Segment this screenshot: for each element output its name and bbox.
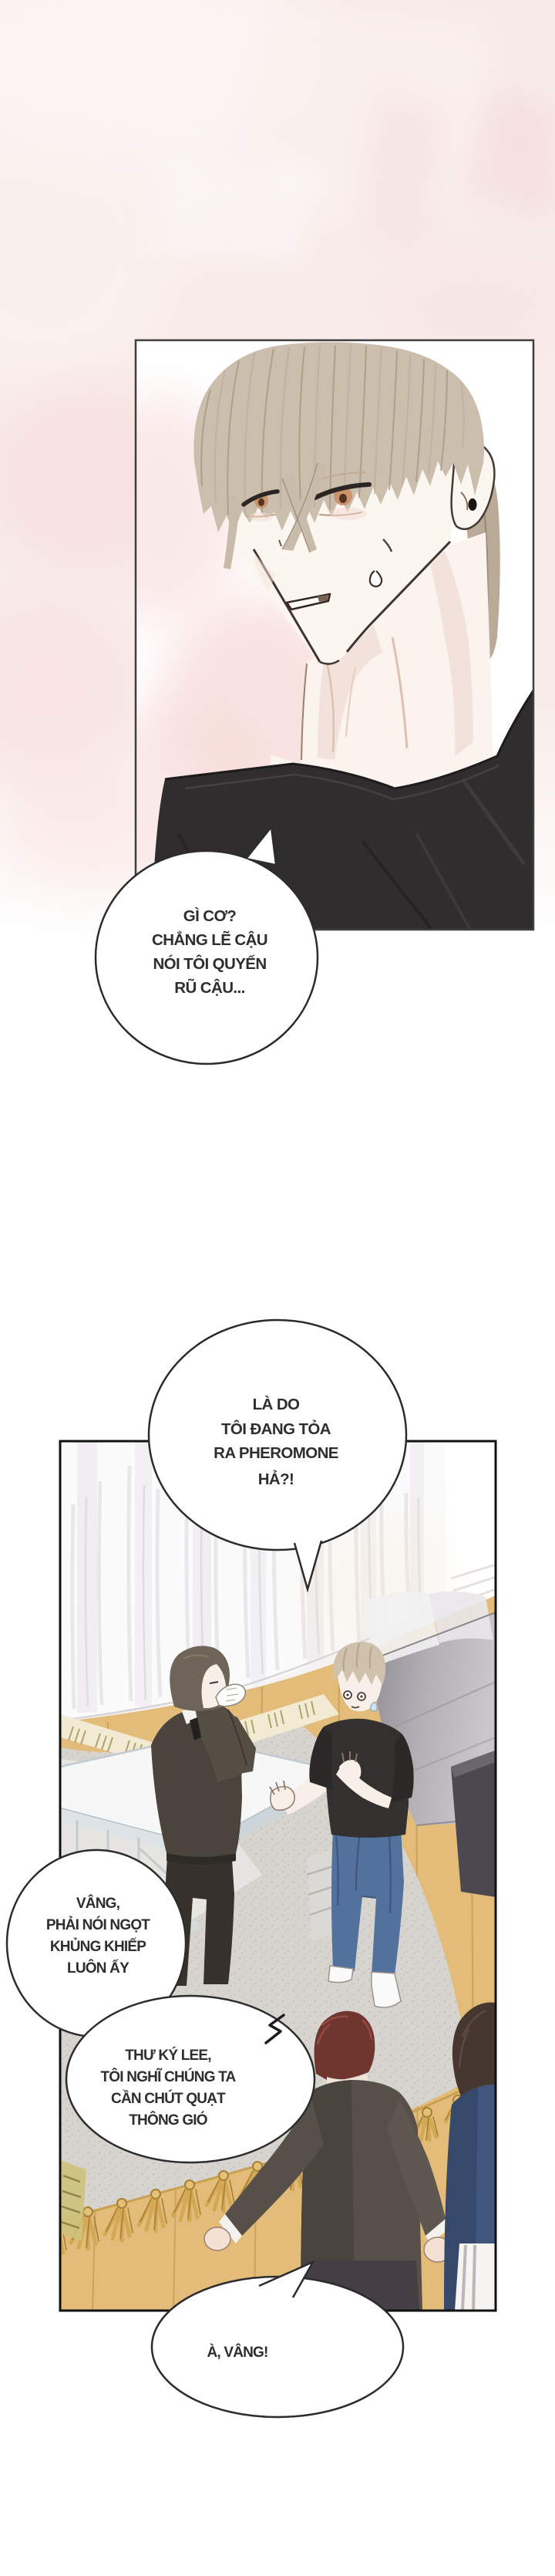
svg-text:RA PHEROMONE: RA PHEROMONE	[214, 1444, 338, 1462]
svg-text:VÂNG,: VÂNG,	[76, 1895, 120, 1912]
svg-text:KHỦNG KHIẾP: KHỦNG KHIẾP	[50, 1938, 146, 1955]
svg-text:CHẲNG LẼ CẬU: CHẲNG LẼ CẬU	[152, 930, 267, 949]
svg-text:LÀ DO: LÀ DO	[253, 1396, 300, 1413]
svg-text:NÓI TÔI QUYẾN: NÓI TÔI QUYẾN	[153, 954, 266, 973]
svg-text:RŨ CẬU...: RŨ CẬU...	[174, 978, 244, 997]
svg-text:GÌ CƠ?: GÌ CƠ?	[183, 907, 237, 925]
svg-text:THƯ KÝ LEE,: THƯ KÝ LEE,	[125, 2047, 211, 2064]
svg-text:TÔI NGHĨ CHÚNG TA: TÔI NGHĨ CHÚNG TA	[101, 2068, 237, 2085]
svg-text:LUÔN ẤY: LUÔN ẤY	[67, 1960, 129, 1977]
svg-text:CẦN CHÚT QUẠT: CẦN CHÚT QUẠT	[111, 2090, 226, 2107]
svg-text:THÔNG GIÓ: THÔNG GIÓ	[129, 2112, 207, 2129]
svg-text:HẢ?!: HẢ?!	[258, 1470, 294, 1488]
svg-text:TÔI ĐANG TỎA: TÔI ĐANG TỎA	[221, 1420, 331, 1438]
svg-text:À, VÂNG!: À, VÂNG!	[207, 2344, 267, 2361]
svg-text:PHẢI NÓI NGỌT: PHẢI NÓI NGỌT	[46, 1916, 150, 1933]
